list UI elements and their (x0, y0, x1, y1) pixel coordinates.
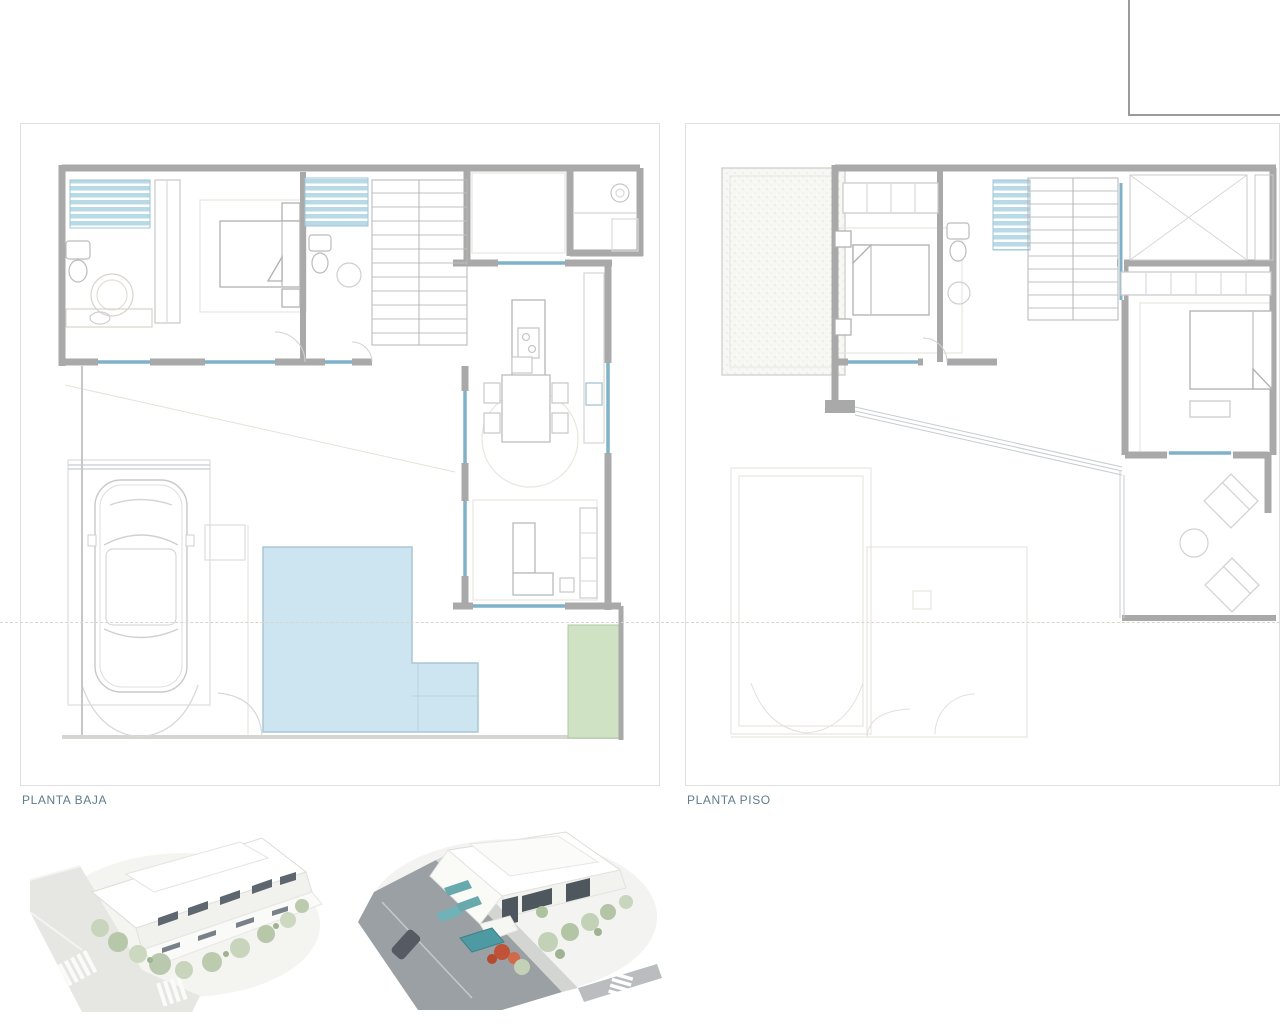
bathroom-3 (947, 223, 970, 304)
shower-1 (70, 180, 150, 228)
glass-balustrade (855, 407, 1124, 618)
door-swings (275, 332, 372, 362)
bathroom-2 (309, 235, 361, 287)
entrance-gates (82, 685, 262, 737)
floor-plan-ground (20, 123, 660, 786)
wardrobe (155, 180, 180, 323)
kitchen-counter (584, 273, 604, 443)
wardrobe-bedroom2 (843, 183, 938, 213)
bathroom-1 (66, 241, 152, 327)
living-room (513, 508, 597, 598)
windows (848, 183, 1231, 453)
door-swing (923, 338, 947, 362)
render-aerial-2 (352, 792, 672, 1010)
bed-3 (1190, 311, 1272, 417)
shower-2 (305, 178, 368, 226)
lawn (568, 625, 620, 738)
stairs (1028, 178, 1118, 320)
terrace-furniture (1180, 474, 1259, 612)
swimming-pool (263, 547, 478, 732)
floor-plan-first-drawing (685, 123, 1280, 786)
wall-stub (825, 400, 855, 413)
roof-terrace (722, 168, 845, 375)
render-aerial-1 (30, 800, 330, 1012)
bed-2 (835, 231, 929, 335)
stairs (372, 180, 467, 345)
floor-plan-first (685, 123, 1280, 786)
utility-room (573, 184, 638, 251)
dining-table (484, 357, 568, 442)
bed-1 (220, 203, 300, 307)
wardrobe-hall (1121, 272, 1271, 295)
shower-3 (993, 180, 1030, 250)
plan-label-first: PLANTA PISO (687, 793, 771, 807)
lower-floor-reference (731, 468, 1027, 737)
floor-plan-ground-drawing (20, 123, 660, 786)
void-skylight (1130, 175, 1273, 260)
car (88, 480, 194, 692)
title-block (1128, 0, 1280, 116)
